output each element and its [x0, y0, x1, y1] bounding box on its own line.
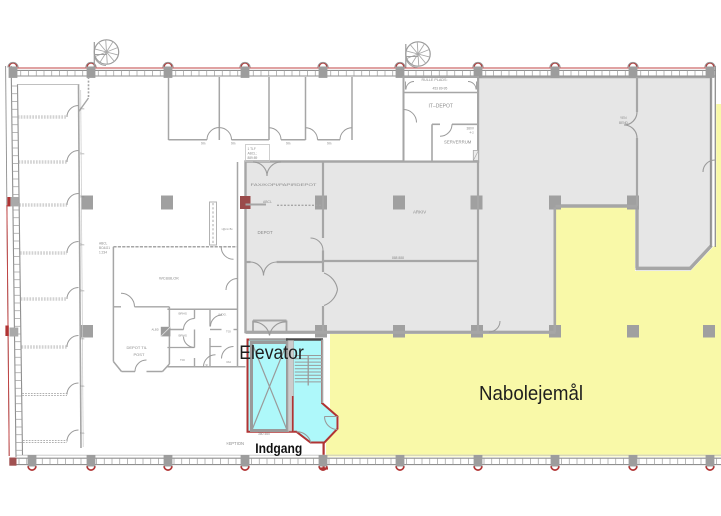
svg-text:9²: 9²: [206, 363, 209, 367]
svg-text:453 89-95: 453 89-95: [433, 87, 448, 91]
svg-text:RH: RH: [227, 360, 231, 364]
svg-text:Elevator: Elevator: [239, 343, 304, 364]
svg-text:ABCL: ABCL: [263, 200, 272, 204]
svg-text:9m: 9m: [327, 142, 332, 146]
svg-text:DEPOT TIL: DEPOT TIL: [127, 345, 148, 350]
svg-text:1:234: 1:234: [99, 250, 107, 254]
svg-text:TOI: TOI: [226, 329, 231, 333]
svg-text:BO&G1: BO&G1: [99, 246, 110, 250]
svg-text:380 460: 380 460: [258, 432, 270, 436]
svg-text:SERVERRUM: SERVERRUM: [444, 140, 472, 145]
svg-text:ABCL;: ABCL;: [248, 152, 257, 156]
svg-text:9m: 9m: [80, 289, 85, 293]
svg-text:9m: 9m: [80, 152, 85, 156]
svg-text:ARKIV: ARKIV: [413, 210, 426, 215]
svg-text:BRHS: BRHS: [179, 333, 187, 337]
svg-text:×EPTION: ×EPTION: [226, 441, 244, 446]
svg-text:9m: 9m: [80, 384, 85, 388]
svg-text:889:89: 889:89: [248, 156, 258, 160]
svg-text:9m: 9m: [286, 142, 291, 146]
svg-text:9m: 9m: [80, 337, 85, 341]
svg-text:9m: 9m: [80, 195, 85, 199]
svg-text:BRHS: BRHS: [179, 312, 187, 316]
svg-text:1 TLF: 1 TLF: [248, 147, 256, 151]
svg-text:9m: 9m: [80, 107, 85, 111]
svg-text:WC&BLOK: WC&BLOK: [159, 276, 179, 281]
svg-text:INDG.: INDG.: [219, 312, 228, 316]
svg-text:Indgang: Indgang: [255, 440, 302, 456]
svg-text:RULLE PLADS:: RULLE PLADS:: [422, 78, 448, 82]
svg-text:9m: 9m: [231, 142, 236, 146]
svg-text:Nabolejemål: Nabolejemål: [479, 383, 583, 405]
svg-text:IT–DEPOT: IT–DEPOT: [429, 104, 453, 110]
svg-text:9m: 9m: [201, 142, 206, 146]
svg-text:YEN: YEN: [620, 116, 627, 120]
svg-text:FAX/KOPI/PAPIRDEPOT: FAX/KOPI/PAPIRDEPOT: [251, 182, 318, 187]
svg-text:ABCL: ABCL: [99, 241, 108, 245]
svg-text:9m: 9m: [80, 243, 85, 247]
svg-text:DEPOT: DEPOT: [258, 230, 273, 235]
svg-text:TOI: TOI: [180, 358, 185, 362]
svg-text:x@cm Bx: x@cm Bx: [222, 227, 234, 231]
svg-text:POST: POST: [134, 352, 145, 357]
svg-text:888 888: 888 888: [392, 256, 404, 260]
svg-text:BEND: BEND: [619, 121, 629, 125]
svg-text:4-2: 4-2: [470, 131, 475, 135]
svg-text:9m: 9m: [80, 431, 85, 435]
svg-text:ALBD: ALBD: [152, 328, 159, 332]
